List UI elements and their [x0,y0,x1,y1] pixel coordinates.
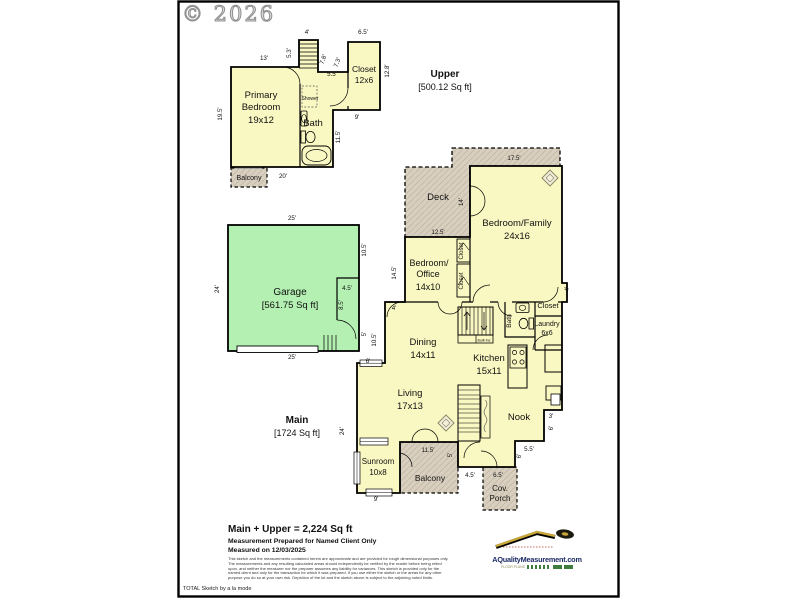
logo-green-block [564,565,573,569]
room-label: Primary [245,90,278,101]
dimension-label: 4' [392,305,397,312]
room-label: Main [286,415,309,426]
dimension-label: 25' [288,354,296,361]
room-label: Kitchen [473,353,505,364]
room-label: 10x8 [369,468,387,477]
room-label: Balcony [237,175,262,182]
dimension-label: 4' [564,287,571,292]
dimension-label: 3' [549,413,554,420]
company-logo: AQualityMeasurement.com FLOOR PLANS [491,526,583,569]
room-label: 14x10 [416,282,441,292]
room-label: Cov. [492,484,508,493]
dimension-label: 6' [548,426,555,431]
room-label: Sunroom [362,457,395,466]
dimension-label: 19.5' [217,107,224,120]
room-label: 19x12 [248,115,274,126]
logo-tagline: FLOOR PLANS [491,565,583,569]
room-label: 17x13 [397,401,423,412]
prepared-for-text: Measurement Prepared for Named Client On… [228,538,496,545]
floor-plan-canvas: PrimaryBedroom19x12BathShowerCloset12x6B… [0,0,800,600]
dimension-label: 6' [516,454,523,459]
room-label: Nook [508,412,530,423]
room-label: Closet [537,301,559,310]
room-label: 12x6 [355,75,374,85]
room-label: Closet [459,272,465,289]
room-label: Porch [490,494,511,503]
room-label: 15x11 [476,366,501,377]
disclaimer-text: This sketch and the measurements contain… [228,557,496,581]
dimension-label: 6.5' [358,29,368,36]
dimension-label: 10.5' [361,243,368,256]
room-label: Bedroom [242,102,281,113]
room-label: Closet [352,64,377,74]
room-label: Dining [410,337,437,348]
room-label: 24x16 [504,231,530,242]
dimension-label: 5' [447,453,454,458]
dimension-label: 4.5' [465,472,475,479]
dimension-label: 13' [260,55,268,62]
dimension-label: 6' [366,358,371,365]
dimension-label: 12.5' [431,229,444,236]
footer-note: TOTAL Sketch by a la mode [183,586,251,592]
garage-door [237,346,318,353]
dimension-label: 4.5' [342,285,352,292]
dimension-label: 6.5' [493,472,503,479]
dimension-label: 10.5' [371,333,378,346]
nook-window [551,394,560,405]
room-label: 14x11 [410,350,435,361]
dimension-label: 24' [339,427,346,435]
dimension-label: 9' [355,114,360,121]
room-label: [1724 Sq ft] [274,428,320,438]
dimension-label: 5.3' [286,48,293,58]
dimension-label: 11.5' [335,131,342,144]
summary-block: Main + Upper = 2,224 Sq ft Measurement P… [228,524,496,581]
room-label: Built-Ins [478,339,491,343]
room-label: Closet [459,242,465,259]
dimension-label: 9' [374,496,379,503]
dimension-label: 14' [458,198,465,206]
dimension-label: 5' [361,332,368,337]
room-label: Shower [302,96,319,102]
dimension-label: 5.5' [524,446,534,453]
dimension-label: 24' [214,285,221,293]
room-label: Laundry [534,321,560,328]
dimension-label: 8.5' [338,300,345,310]
logo-tick-marks [527,565,551,569]
room-label: Bath [506,314,513,328]
logo-site-text: AQualityMeasurement.com [491,555,583,564]
room-label: Office [416,269,439,279]
disclaimer-line: purpose you do so at your own risk. Depi… [228,576,496,581]
room-label: Garage [273,287,307,298]
dimension-label: 20' [279,173,287,180]
room-label: Bedroom/ [409,258,449,268]
logo-tagline-text: FLOOR PLANS [501,565,525,569]
dimension-label: 14.5' [391,266,398,279]
room-label: Bedroom/Family [482,218,551,229]
copyright-watermark: © 2026 [182,2,275,26]
logo-green-block [553,565,562,569]
room-label: 6x6 [541,330,552,337]
dimension-label: 11.5' [422,447,435,454]
floorplan-sketch-screenshot: { "copyright": "© 2026", "footer_note": … [0,0,800,600]
room-label: Bath [303,118,323,129]
room-label: Upper [431,69,460,80]
room-label: Living [398,388,423,399]
total-area-text: Main + Upper = 2,224 Sq ft [228,524,496,535]
room-label: [561.75 Sq ft] [262,300,319,311]
dimension-label: 12.8' [384,64,391,77]
dimension-label: 4' [305,29,310,36]
logo-roof-graphic [493,526,581,550]
measured-date-text: Measured on 12/03/2025 [228,547,496,554]
dimension-label: 17.5' [507,155,520,162]
room-label: [500.12 Sq ft] [418,82,472,92]
room-label: Deck [427,192,449,203]
dimension-label: 5.5' [327,71,337,78]
dimension-label: 25' [288,215,296,222]
room-label: Balcony [415,473,446,483]
